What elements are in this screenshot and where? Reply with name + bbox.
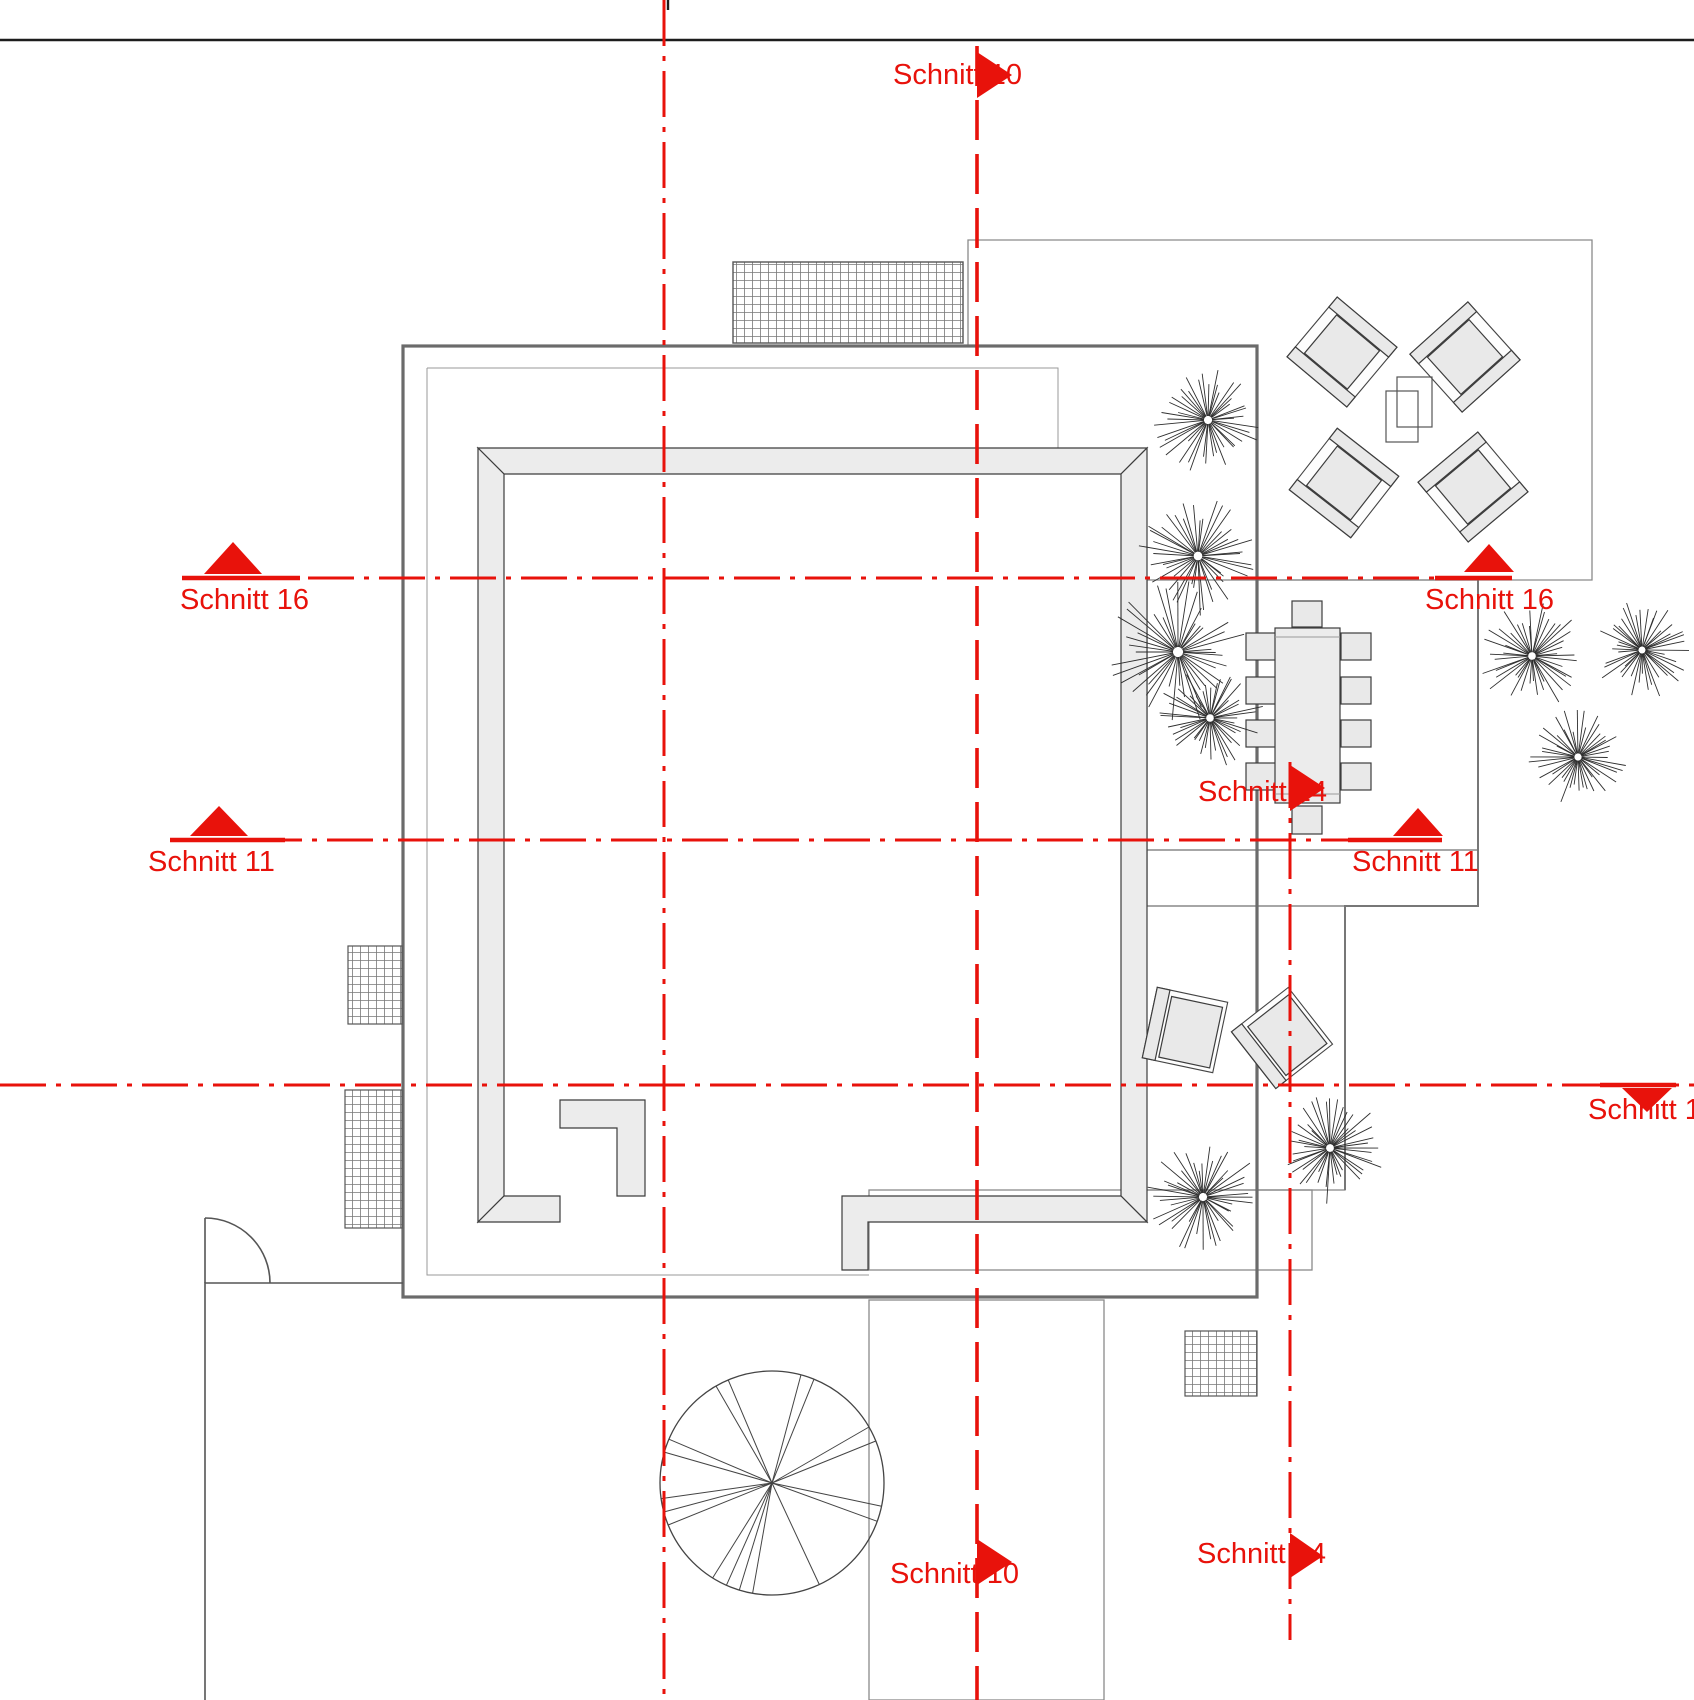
roof-plan-drawing: Schnitt 10 Schnitt 16 Schnitt 16 Schnitt… — [0, 0, 1694, 1700]
lounge-chair — [1289, 428, 1398, 537]
dining-chair — [1292, 806, 1322, 834]
lounge-group-upper — [1287, 297, 1528, 542]
lounge-chair — [1287, 297, 1397, 407]
parapet-top-band — [478, 448, 1147, 474]
roof-trellis-grate — [733, 262, 963, 343]
courtyard-parapet — [478, 448, 1147, 1270]
lounge-chair — [1410, 302, 1520, 412]
section-label-schnitt16-right: Schnitt 16 — [1425, 584, 1554, 616]
parapet-left-band — [478, 448, 504, 1222]
lounge-chair — [1231, 987, 1332, 1088]
parapet-right-band — [1121, 448, 1147, 1222]
dining-chair — [1292, 601, 1322, 627]
left-grate-upper — [348, 946, 402, 1024]
parapet-step-band — [560, 1100, 645, 1196]
section-arrow-schnitt11-right — [1393, 808, 1443, 836]
section-arrow-schnitt16-left — [204, 542, 262, 574]
side-table — [1397, 377, 1432, 427]
bottom-grate — [1185, 1331, 1257, 1396]
paving-upper-terrace — [968, 240, 1592, 580]
dining-chairs-left — [1246, 633, 1276, 790]
spiral-stair — [660, 1371, 884, 1595]
neighbor-building — [205, 1218, 403, 1700]
spiral-stair-treads — [661, 1375, 882, 1594]
lounge-group-lower — [1142, 987, 1332, 1088]
lounge-chair — [1418, 432, 1528, 542]
section-markers: Schnitt 10 Schnitt 16 Schnitt 16 Schnitt… — [0, 0, 1694, 1700]
parapet-bottom-right-band — [842, 1196, 1147, 1270]
paving-walkway-path — [869, 1300, 1104, 1700]
section-arrow-schnitt16-right — [1464, 544, 1514, 572]
left-grate-lower — [345, 1090, 402, 1228]
section-label-schnitt16-left: Schnitt 16 — [180, 584, 309, 616]
section-label-schnitt11-left: Schnitt 11 — [148, 846, 275, 878]
neighbor-outline — [205, 1283, 403, 1700]
door-swing-arc — [205, 1218, 270, 1283]
roof-inner-offset-line — [427, 368, 1058, 1275]
terrace-wing-edge — [1345, 580, 1478, 1190]
section-arrow-schnitt11-left — [190, 806, 248, 836]
sheet-border — [0, 0, 1694, 40]
lounge-chair — [1142, 987, 1227, 1072]
dining-chairs-right — [1341, 633, 1371, 790]
section-label-schnitt11-right: Schnitt 11 — [1352, 846, 1479, 878]
plan-canvas: Schnitt 10 Schnitt 16 Schnitt 16 Schnitt… — [0, 0, 1694, 1700]
side-table — [1386, 391, 1418, 442]
